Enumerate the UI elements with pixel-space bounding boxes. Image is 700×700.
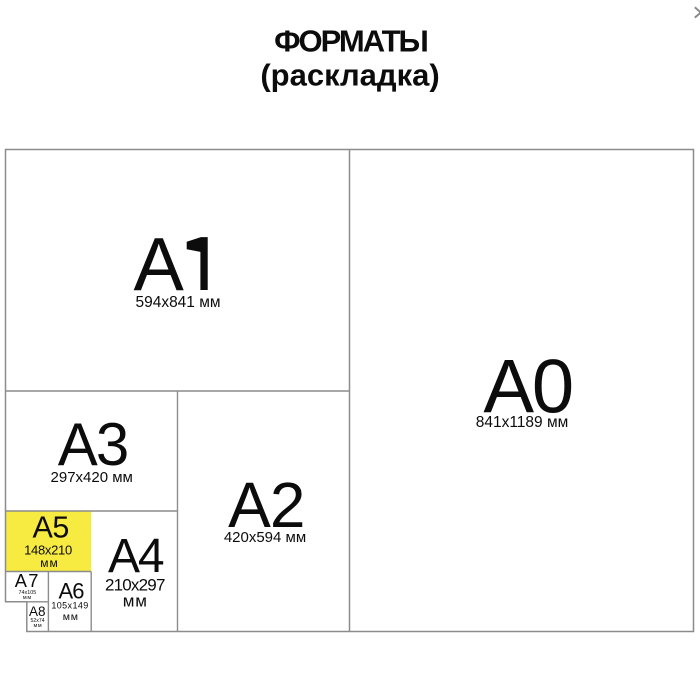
svg-text:ФОРМАТЫ: ФОРМАТЫ <box>274 23 427 58</box>
svg-text:мм: мм <box>123 591 148 610</box>
svg-text:297x420 мм: 297x420 мм <box>51 469 133 486</box>
svg-text:мм: мм <box>34 623 43 629</box>
svg-text:(раскладка): (раскладка) <box>260 58 439 93</box>
svg-text:A3: A3 <box>58 411 127 478</box>
svg-text:105x149: 105x149 <box>51 601 88 611</box>
svg-text:420x594 мм: 420x594 мм <box>224 529 306 546</box>
svg-text:A5: A5 <box>33 510 69 544</box>
svg-text:A8: A8 <box>29 604 46 619</box>
svg-text:841x1189 мм: 841x1189 мм <box>476 414 569 431</box>
svg-text:594x841 мм: 594x841 мм <box>135 294 220 311</box>
svg-text:мм: мм <box>63 611 79 623</box>
svg-text:мм: мм <box>23 595 32 601</box>
svg-text:мм: мм <box>40 556 59 570</box>
svg-text:A7: A7 <box>15 570 40 591</box>
